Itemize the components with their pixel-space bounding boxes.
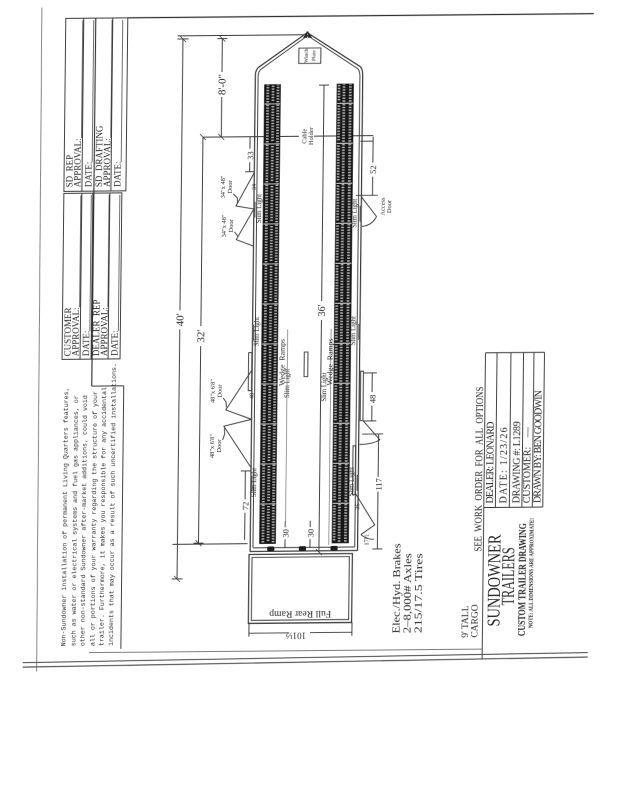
- svg-text:NOTE: ALL DIMENSIONS ARE APPRO: NOTE: ALL DIMENSIONS ARE APPROXIMATE!: [529, 518, 536, 628]
- svg-text:DATE: 1/23/26: DATE: 1/23/26: [498, 427, 510, 503]
- svg-text:Slim Light: Slim Light: [256, 194, 263, 223]
- svg-text:Wedge Ramps: Wedge Ramps: [325, 338, 335, 385]
- svg-text:52: 52: [368, 165, 378, 174]
- svg-text:34: 34: [251, 183, 258, 190]
- svg-text:APPROVAL:: APPROVAL:: [72, 138, 83, 187]
- svg-text:30: 30: [280, 529, 290, 538]
- svg-text:APPROVAL:: APPROVAL:: [102, 138, 113, 187]
- svg-text:Holder: Holder: [308, 126, 315, 145]
- svg-text:17½: 17½: [363, 534, 370, 545]
- svg-text:215/17.5 Tires: 215/17.5 Tires: [413, 553, 425, 633]
- svg-text:Wedge Ramps: Wedge Ramps: [277, 339, 287, 386]
- svg-text:CUSTOM TRAILER DRAWING: CUSTOM TRAILER DRAWING: [517, 523, 529, 636]
- svg-text:2–8,000# Axles: 2–8,000# Axles: [402, 553, 414, 633]
- svg-text:DATE:: DATE:: [81, 331, 91, 357]
- svg-text:Slim Light: Slim Light: [350, 316, 357, 345]
- svg-text:Slim Light: Slim Light: [352, 199, 359, 228]
- svg-text:48: 48: [367, 395, 377, 404]
- svg-text:32': 32': [195, 330, 207, 343]
- svg-text:Door: Door: [216, 439, 223, 453]
- svg-text:48: 48: [249, 393, 256, 399]
- svg-text:Slim Light: Slim Light: [251, 468, 258, 497]
- svg-text:40': 40': [175, 313, 187, 326]
- svg-text:72: 72: [240, 502, 250, 511]
- svg-text:Slim Light: Slim Light: [254, 317, 261, 346]
- svg-text:DATE:: DATE:: [83, 162, 93, 188]
- svg-text:Door: Door: [227, 179, 234, 193]
- svg-text:CARGO: CARGO: [470, 604, 480, 637]
- svg-text:DRAWN BY: BEN GOODWIN: DRAWN BY: BEN GOODWIN: [532, 390, 544, 503]
- svg-text:APPROVAL:: APPROVAL:: [71, 307, 82, 356]
- svg-text:30: 30: [305, 529, 315, 538]
- svg-text:36': 36': [317, 304, 328, 316]
- svg-text:36: 36: [354, 503, 361, 509]
- svg-text:Slim Light: Slim Light: [348, 467, 355, 496]
- svg-text:Plate: Plate: [311, 50, 317, 61]
- svg-text:DEALER: LEONARD: DEALER: LEONARD: [485, 421, 497, 503]
- svg-text:Door: Door: [216, 384, 223, 398]
- svg-text:8'-0": 8'-0": [216, 74, 228, 95]
- svg-text:Full Rear Ramp: Full Rear Ramp: [269, 608, 331, 619]
- svg-text:Door: Door: [386, 199, 393, 213]
- svg-text:TRAILERS: TRAILERS: [498, 547, 519, 605]
- svg-text:101½: 101½: [286, 631, 307, 641]
- svg-text:117: 117: [373, 478, 383, 491]
- svg-text:DATE:: DATE:: [110, 330, 120, 356]
- svg-text:SEE WORK ORDER FOR ALL OP: SEE WORK ORDER FOR ALL OPTIONS: [472, 387, 486, 552]
- svg-text:DATE:: DATE:: [112, 161, 122, 187]
- svg-text:Door: Door: [228, 218, 235, 232]
- svg-text:Winch: Winch: [304, 48, 310, 63]
- svg-text:33: 33: [245, 151, 255, 160]
- svg-text:APPROVAL:: APPROVAL:: [99, 307, 110, 356]
